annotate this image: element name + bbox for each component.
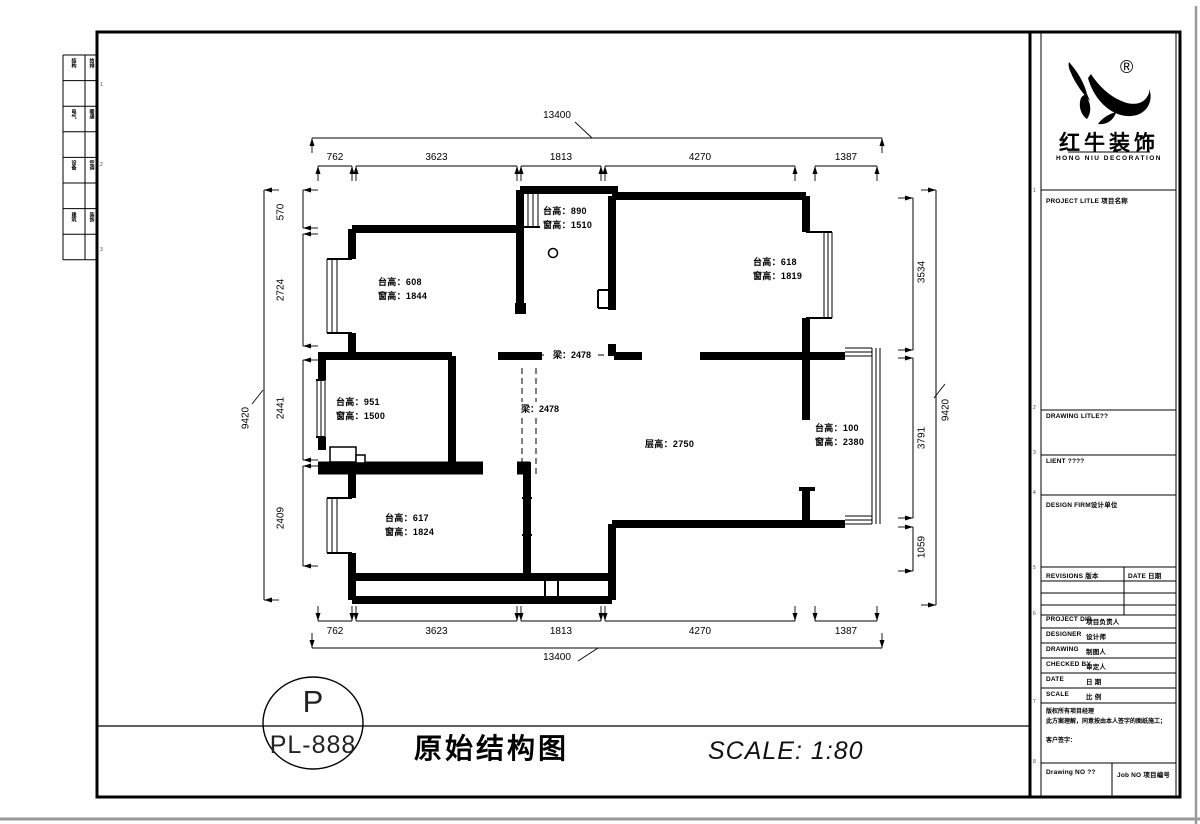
dim-arrow [793,613,798,621]
dim-arrow [813,166,818,174]
strip-cell: 结构 [70,58,76,68]
room-top-right-label: 台高：618 窗高：1819 [753,256,802,283]
drawing-label: DRAWING LITLE?? [1046,413,1108,420]
dim-left-total: 9420 [241,407,252,429]
dim-arrow [303,564,311,569]
dim-left-1: 2724 [276,279,287,301]
dim-top-0: 762 [327,152,344,163]
drawing-canvas [0,0,1200,824]
registered-trademark-icon: ® [1120,57,1133,78]
dim-bottom-1: 3623 [425,626,447,637]
frame-mark: 1 [1033,188,1036,194]
dim-arrow [303,458,311,463]
room-mid-left-label: 台高：951 窗高：1500 [336,396,385,423]
tb-row-en: DESIGNER [1046,631,1082,638]
copyright-line: 客户签字： [1046,736,1076,746]
strip-mark: 1 [100,82,103,88]
line [252,390,263,404]
room-top-left-label: 台高：608 窗高：1844 [378,276,427,303]
dim-arrow [264,188,272,193]
dim-arrow [519,166,524,174]
rect [330,447,356,462]
dim-arrow [316,613,321,621]
dim-left-2: 2441 [276,397,287,419]
revisions-label: REVISIONS 版本 [1046,570,1099,580]
dim-bottom-total: 13400 [543,652,571,663]
frame-mark: 7 [1033,699,1036,705]
dim-arrow [905,356,913,361]
dim-arrow [599,613,604,621]
dim-arrow [875,613,880,621]
dim-arrow [905,516,913,521]
dim-arrow [905,569,913,574]
dim-arrow [793,166,798,174]
tb-row-cn: 设计师 [1086,631,1106,641]
dim-arrow [603,613,608,621]
frame-mark: 2 [1033,405,1036,411]
dim-top-1: 3623 [425,152,447,163]
logo-bull-icon [1069,62,1090,101]
dim-arrow [603,166,608,174]
dim-bottom-2: 1813 [550,626,572,637]
project-label: PROJECT LITLE 项目名称 [1046,195,1128,205]
frame-mark: 4 [1033,490,1036,496]
rect [356,455,365,463]
dim-arrow [303,188,311,193]
tb-row-en: SCALE [1046,691,1069,698]
logo-bull-icon [1098,112,1116,124]
tb-row-cn: 审定人 [1086,661,1106,671]
strip-mark: 2 [100,162,103,168]
dim-arrow [303,226,311,231]
frame-mark: 8 [1033,759,1036,765]
dim-bottom-3: 4270 [689,626,711,637]
stamp-code: PL-888 [266,731,360,760]
strip-cell: 建筑 [70,212,76,222]
dim-arrow [515,613,520,621]
tb-row-en: DATE [1046,676,1064,683]
dim-top-3: 4270 [689,152,711,163]
tb-row-cn: 比 例 [1086,691,1101,701]
dim-arrow [880,640,885,648]
scale-note: SCALE: 1:80 [708,737,864,766]
dim-bottom-0: 762 [327,626,344,637]
balcony-label: 台高：100 窗高：2380 [815,422,864,449]
dim-arrow [350,613,355,621]
dim-left-0: 570 [276,204,287,221]
dim-arrow [905,196,913,201]
dim-arrow [905,525,913,530]
copyright-line: 此方案理解，同意按由本人签字的图纸施工； [1046,717,1166,727]
tb-row-en: DRAWING [1046,646,1079,653]
dim-arrow [905,348,913,353]
page: { "stamp": {"letter": "P", "code": "PL-8… [0,0,1200,824]
rev-date-label: DATE 日期 [1128,570,1161,580]
logo-company-sub: HONG NIU DECORATION [1041,155,1177,162]
strip-cell: 给排 [88,58,94,68]
room-kitchen-label: 台高：890 窗高：1510 [543,205,592,232]
living-room-label: 层高：2750 [645,438,694,452]
dim-arrow [354,613,359,621]
dim-right-1: 3791 [917,427,928,449]
dim-arrow [880,138,885,146]
strip-cell: 暖通 [88,109,94,119]
rect [515,303,526,314]
client-label: LIENT ???? [1046,458,1084,465]
frame-mark: 6 [1033,611,1036,617]
dim-arrow [519,613,524,621]
dim-arrow [264,598,272,603]
frame-mark: 5 [1033,565,1036,571]
tb-row-cn: 日 期 [1086,676,1101,686]
job-no-label: Job NO 项目编号 [1117,769,1170,779]
dim-arrow [813,613,818,621]
dim-arrow [303,232,311,237]
dim-top-4: 1387 [835,152,857,163]
dim-arrow [354,166,359,174]
dim-arrow [303,464,311,469]
dim-top-2: 1813 [550,152,572,163]
beam-vertical-label: 梁：2478 [519,402,561,415]
circle [549,249,558,258]
logo-bull-icon [1088,74,1151,116]
beam-horizontal-label: 梁：2478 [551,348,593,361]
dim-arrow [310,640,315,648]
logo-company-name: 红牛装饰 [1048,127,1170,157]
dim-right-0: 3534 [917,261,928,283]
frame-mark: 3 [1033,450,1036,456]
dim-arrow [303,358,311,363]
line [575,122,592,138]
dim-arrow [928,188,936,193]
strip-cell: 设备 [70,160,76,170]
tb-row-cn: 项目负责人 [1086,616,1120,626]
dim-arrow [928,603,936,608]
sheet-title: 原始结构图 [414,727,569,767]
dim-arrow [310,138,315,146]
strip-mark: 3 [100,247,103,253]
copyright-line: 版权所有项目经理 [1046,707,1094,717]
dim-arrow [875,166,880,174]
dim-left-3: 2409 [276,507,287,529]
dim-arrow [515,166,520,174]
strip-cell: 装饰 [88,212,94,222]
dim-arrow [350,166,355,174]
dim-bottom-4: 1387 [835,626,857,637]
room-low-left-label: 台高：617 窗高：1824 [385,512,434,539]
dim-arrow [303,344,311,349]
dim-right-2: 1059 [917,536,928,558]
firm-label: DESIGN FIRM设计单位 [1046,499,1118,509]
tb-row-cn: 制图人 [1086,646,1106,656]
drawing-no-label: Drawing NO ?? [1046,769,1096,776]
strip-cell: 空调 [88,160,94,170]
dim-arrow [316,166,321,174]
dim-right-total: 9420 [941,399,952,421]
tb-row-en: CHECKED BY [1046,661,1091,668]
dim-arrow [599,166,604,174]
rect [97,32,1180,797]
stamp-letter: P [295,684,331,720]
dim-top-total: 13400 [543,110,571,121]
strip-cell: 电气 [70,109,76,119]
line [578,648,598,661]
